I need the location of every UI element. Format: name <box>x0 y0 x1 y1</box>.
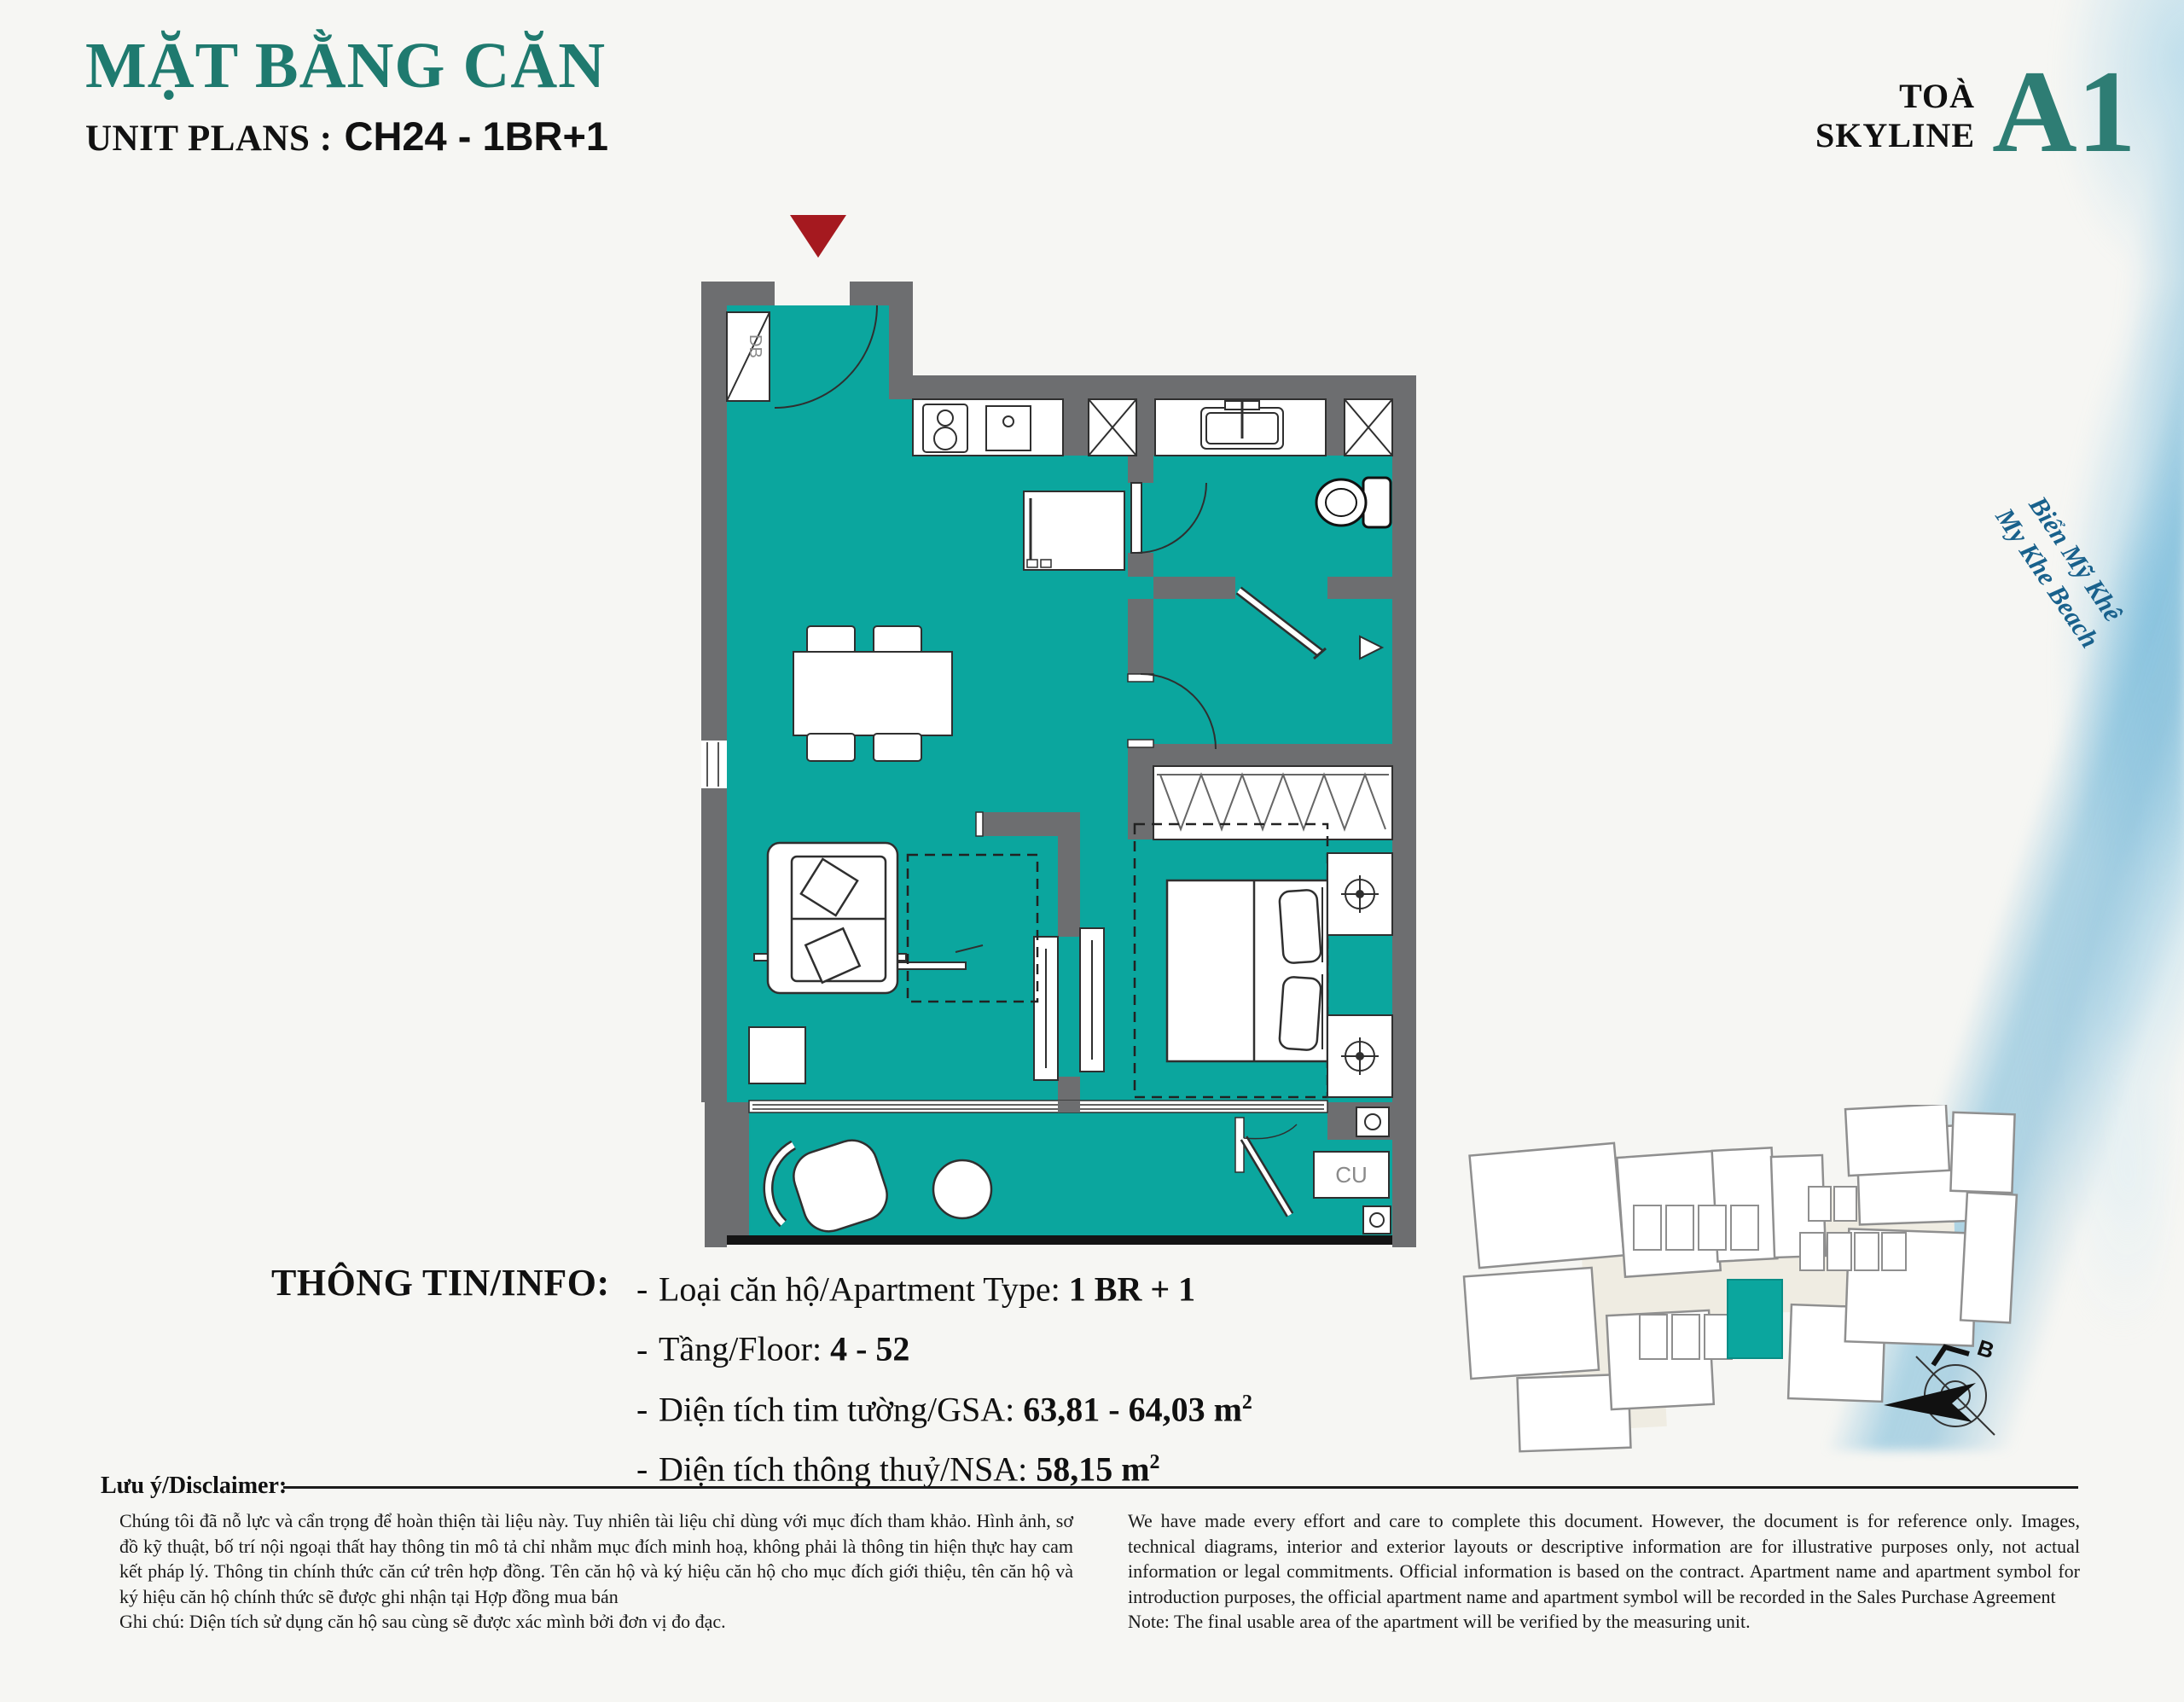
entry-direction-icon <box>790 215 846 258</box>
tower-label: TOÀ SKYLINE <box>1815 77 1975 155</box>
kitchen-counter <box>913 399 1063 456</box>
nightstand <box>1327 853 1392 935</box>
info-items: -Loại căn hộ/Apartment Type: 1 BR + 1 -T… <box>636 1256 1575 1496</box>
highlighted-unit <box>1728 1280 1782 1358</box>
wardrobe <box>1153 766 1392 839</box>
condensing-unit: CU <box>1314 1152 1389 1198</box>
bathroom-vanity <box>1155 399 1326 456</box>
disclaimer-vi-text: Chúng tôi đã nỗ lực và cẩn trọng để hoàn… <box>119 1508 1073 1609</box>
balcony-window <box>749 1101 1327 1112</box>
unit-plan-subtitle: UNIT PLANS :CH24 - 1BR+1 <box>85 113 608 160</box>
unit-code: CH24 - 1BR+1 <box>345 113 609 159</box>
unit-plans-label: UNIT PLANS : <box>85 119 333 159</box>
svg-text:CU: CU <box>1335 1162 1368 1188</box>
disclaimer-vi-note: Ghi chú: Diện tích sử dụng căn hộ sau cù… <box>119 1609 1073 1635</box>
sofa <box>768 843 897 993</box>
disclaimer-divider <box>283 1486 2078 1489</box>
info-heading: THÔNG TIN/INFO: <box>271 1261 610 1304</box>
fridge <box>1024 491 1124 570</box>
info-item-floor: -Tầng/Floor: 4 - 52 <box>636 1316 1575 1375</box>
beach-caption-vi: Biển Mỹ Khê <box>1961 401 2184 717</box>
disclaimer-heading: Lưu ý/Disclaimer: <box>101 1473 287 1500</box>
balcony-table <box>933 1160 991 1218</box>
svg-text:DB: DB <box>746 334 764 358</box>
beach-caption-en: My Khe Beach <box>1933 420 2162 736</box>
tower-label-line1: TOÀ <box>1815 77 1975 116</box>
nightstand <box>1327 1015 1392 1097</box>
title-block: MẶT BẰNG CĂN UNIT PLANS :CH24 - 1BR+1 <box>85 32 608 160</box>
bed <box>1167 880 1327 1061</box>
wall-jamb <box>976 812 983 836</box>
tower-badge: TOÀ SKYLINE A1 <box>1815 61 2136 171</box>
left-window <box>701 741 727 788</box>
side-table <box>749 1027 805 1083</box>
shaft-icon <box>1345 399 1392 456</box>
info-item-gsa: -Diện tích tim tường/GSA: 63,81 - 64,03 … <box>636 1376 1575 1436</box>
tower-label-line2: SKYLINE <box>1815 116 1975 155</box>
disclaimer-en-text: We have made every effort and care to co… <box>1128 1508 2080 1609</box>
compass-icon: B <box>1884 1334 1997 1435</box>
disclaimer-en-note: Note: The final usable area of the apart… <box>1128 1609 2080 1635</box>
floor-plan: DB <box>682 205 1433 1263</box>
db-cabinet: DB <box>727 312 770 401</box>
toilet <box>1316 478 1391 527</box>
shaft-icon <box>1089 399 1136 456</box>
svg-text:B: B <box>1974 1334 1997 1363</box>
balcony-edge <box>727 1235 1392 1245</box>
info-item-apartment-type: -Loại căn hộ/Apartment Type: 1 BR + 1 <box>636 1256 1575 1316</box>
tower-code: A1 <box>1992 53 2136 171</box>
beach-caption: Biển Mỹ Khê My Khe Beach <box>1933 401 2184 736</box>
disclaimer-vietnamese: Chúng tôi đã nỗ lực và cẩn trọng để hoàn… <box>119 1508 1073 1635</box>
unit-plan-page: { "header": { "title": "MẶT BẰNG CĂN", "… <box>0 0 2184 1702</box>
disclaimer-english: We have made every effort and care to co… <box>1128 1508 2080 1635</box>
page-title: MẶT BẰNG CĂN <box>85 32 608 101</box>
